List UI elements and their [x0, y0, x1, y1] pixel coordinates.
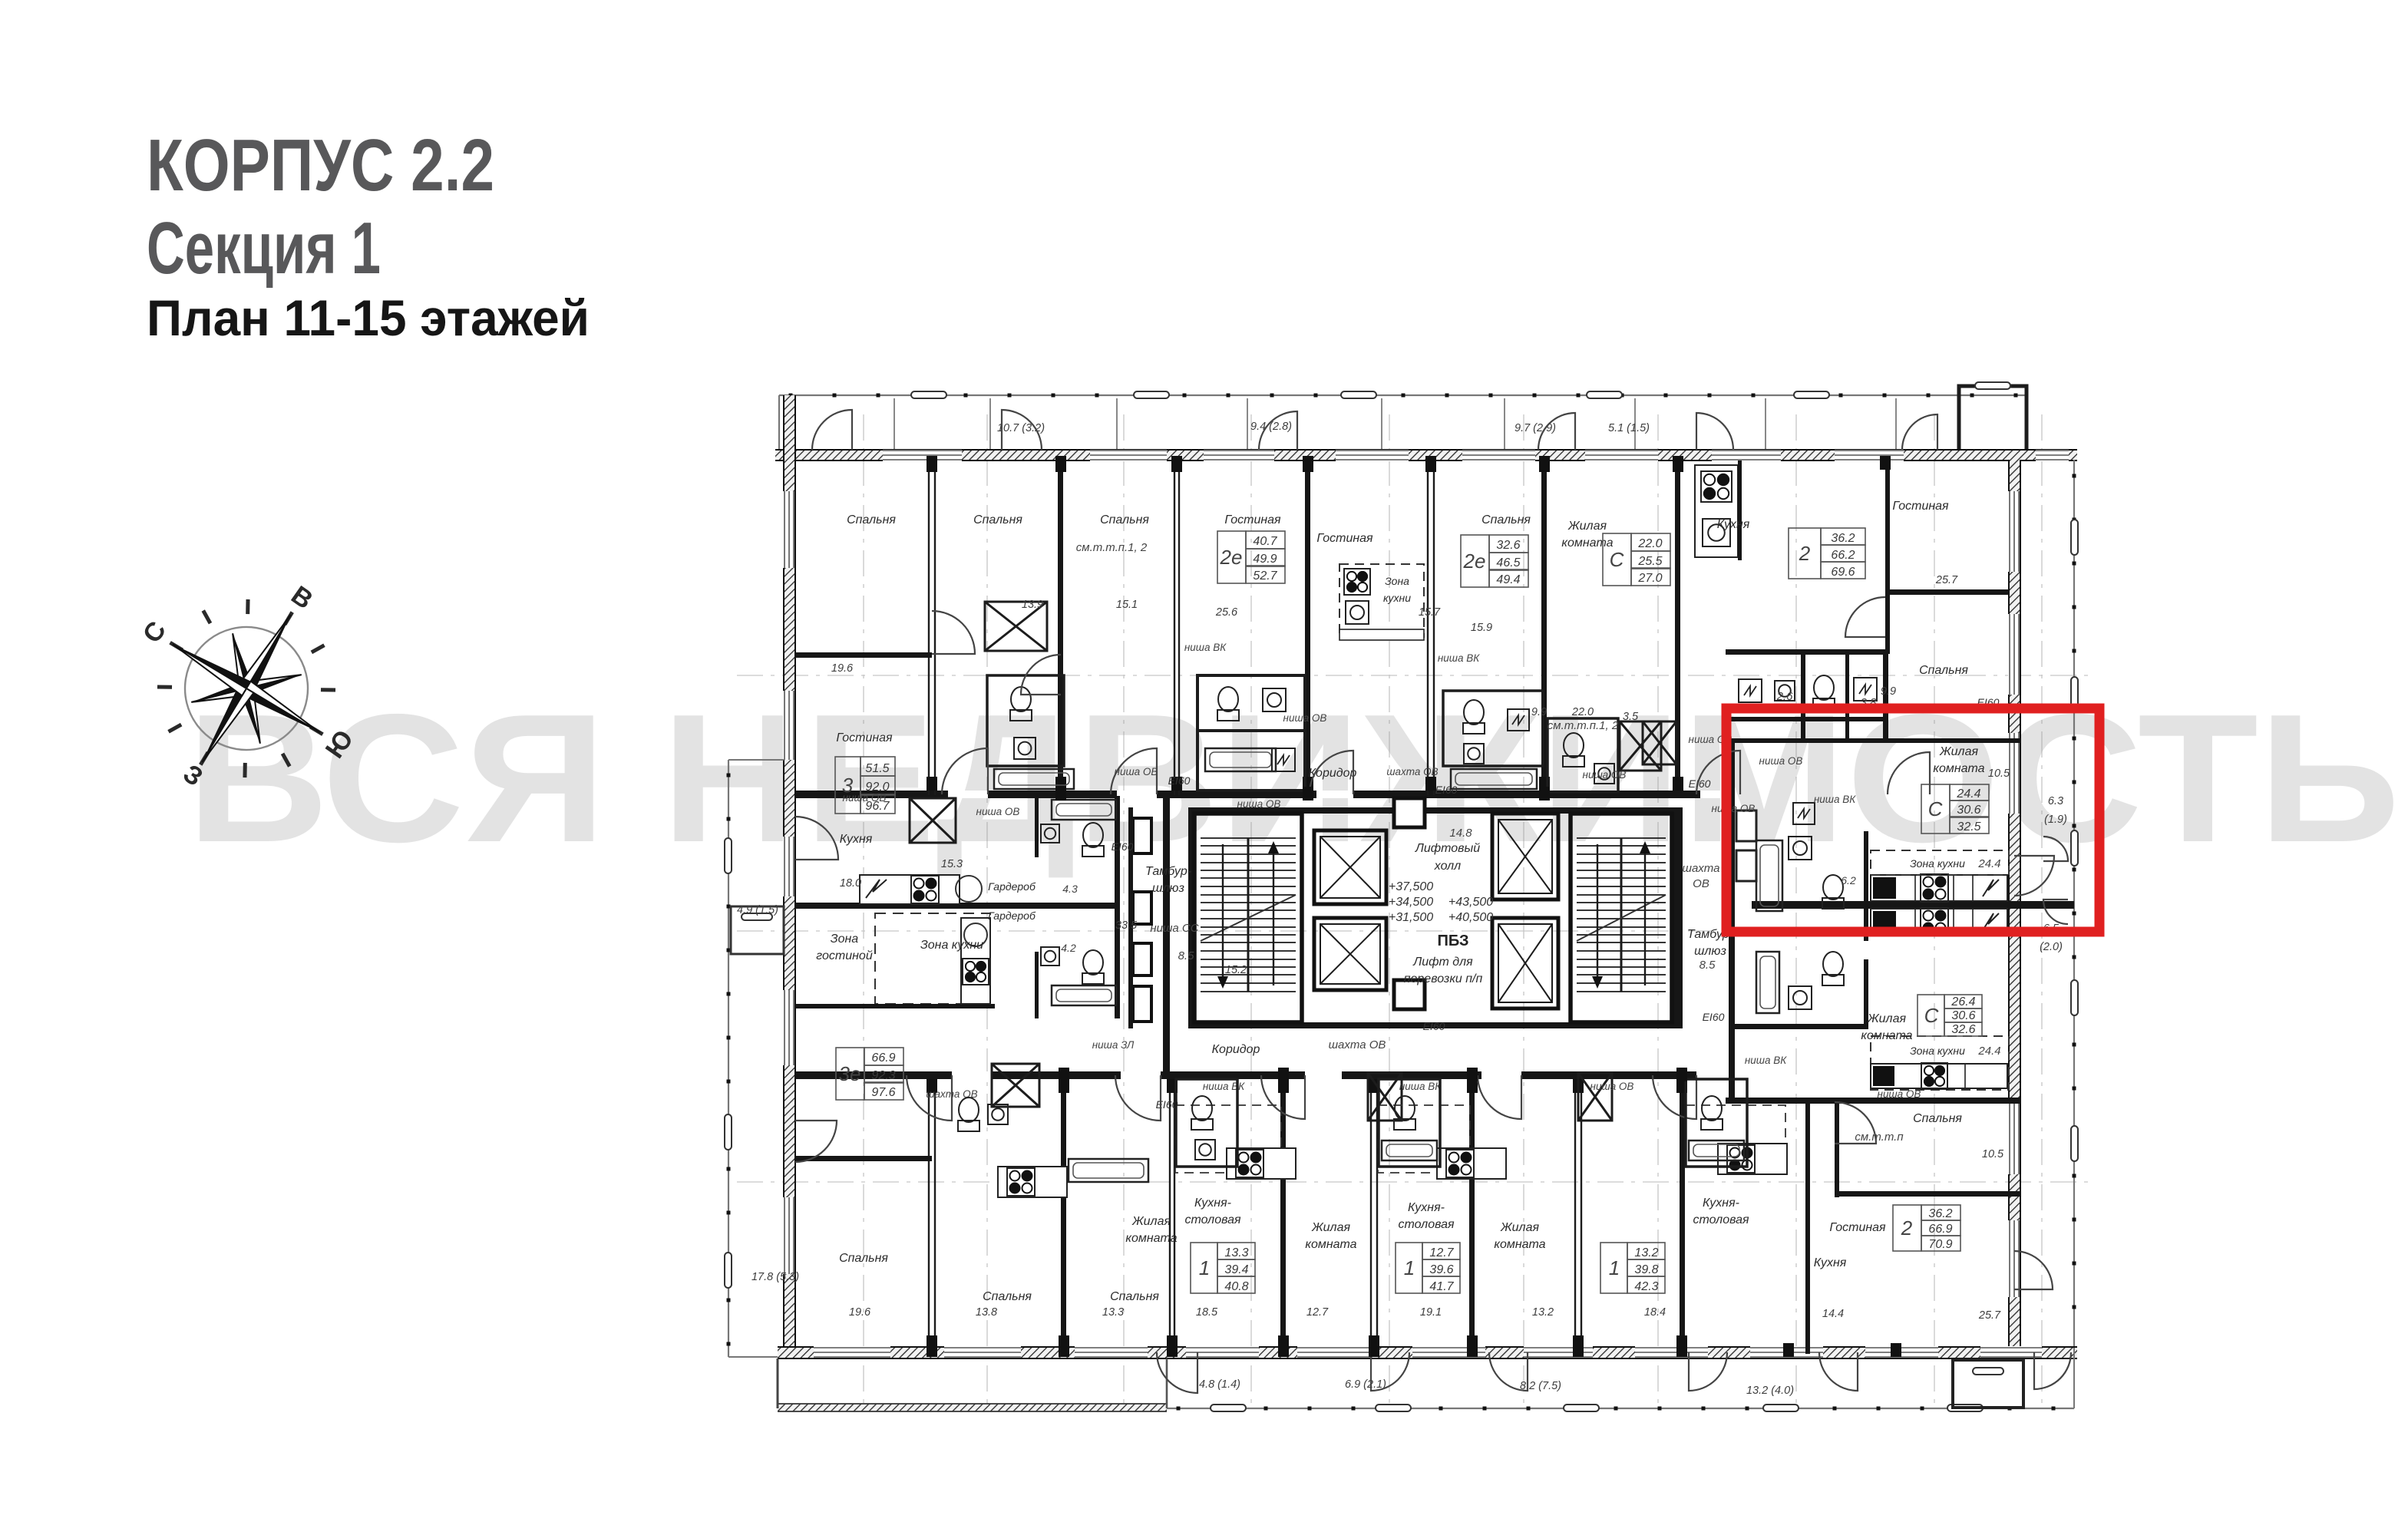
svg-text:холл: холл	[1434, 860, 1461, 873]
svg-text:Спальня: Спальня	[1110, 1290, 1159, 1303]
svg-text:10.5: 10.5	[1982, 1148, 2004, 1160]
svg-text:Спальня: Спальня	[1481, 513, 1531, 527]
svg-text:шлюз: шлюз	[1152, 882, 1184, 895]
svg-text:Кухня: Кухня	[840, 833, 873, 846]
svg-text:ниша ОВ: ниша ОВ	[1590, 1081, 1634, 1092]
svg-text:ниша ОВ: ниша ОВ	[1759, 755, 1803, 767]
svg-text:52.7: 52.7	[1253, 569, 1277, 583]
svg-text:4.3: 4.3	[1062, 883, 1078, 895]
svg-text:24.4: 24.4	[1977, 857, 2000, 870]
svg-text:ниша ОВ: ниша ОВ	[1712, 803, 1756, 814]
svg-text:+34,500: +34,500	[1389, 896, 1433, 909]
svg-text:22.0: 22.0	[1637, 537, 1662, 550]
svg-text:32.5: 32.5	[1957, 820, 1980, 834]
svg-text:ЕІ60: ЕІ60	[1435, 784, 1458, 796]
svg-text:19.6: 19.6	[849, 1306, 871, 1319]
svg-text:ЕІ60: ЕІ60	[1703, 1011, 1725, 1023]
svg-text:Гостиная: Гостиная	[1316, 532, 1373, 545]
svg-text:15.2: 15.2	[1225, 964, 1247, 976]
svg-text:14.8: 14.8	[1449, 827, 1472, 840]
svg-text:66.2: 66.2	[1831, 549, 1855, 562]
svg-text:Гардероб: Гардероб	[988, 909, 1036, 922]
svg-text:ОВ: ОВ	[1693, 877, 1709, 890]
svg-text:42.3: 42.3	[1634, 1280, 1658, 1293]
svg-text:ниша ВК: ниша ВК	[1184, 642, 1227, 653]
svg-text:столовая: столовая	[1693, 1213, 1749, 1226]
svg-text:2: 2	[1799, 542, 1811, 565]
svg-text:15.7: 15.7	[1419, 606, 1441, 619]
svg-text:Кухня: Кухня	[1814, 1256, 1847, 1269]
svg-text:План 11-15 этажей: План 11-15 этажей	[147, 289, 590, 346]
svg-text:ниша ОВ: ниша ОВ	[1878, 1088, 1921, 1100]
svg-text:Гостиная: Гостиная	[1892, 500, 1949, 513]
svg-text:Гостиная: Гостиная	[1224, 513, 1281, 527]
svg-text:ниша ОВ: ниша ОВ	[843, 792, 887, 804]
svg-text:ниша ВК: ниша ВК	[1399, 1081, 1442, 1092]
svg-text:Спальня: Спальня	[847, 513, 896, 527]
svg-text:ниша ОВ: ниша ОВ	[1283, 712, 1327, 724]
svg-text:С: С	[1610, 548, 1624, 571]
svg-text:19.1: 19.1	[1420, 1306, 1442, 1319]
svg-text:4.2: 4.2	[1061, 942, 1076, 954]
svg-text:столовая: столовая	[1184, 1213, 1241, 1226]
svg-text:24.4: 24.4	[1977, 1045, 2000, 1058]
svg-text:8.5: 8.5	[1178, 949, 1195, 962]
svg-text:Кухня-: Кухня-	[1703, 1197, 1739, 1210]
svg-text:40.7: 40.7	[1253, 535, 1277, 548]
svg-text:см.т.т.п.1, 2: см.т.т.п.1, 2	[1076, 541, 1148, 554]
svg-text:70.9: 70.9	[1928, 1238, 1952, 1251]
svg-text:гостиной: гостиной	[816, 949, 873, 962]
svg-text:15.9: 15.9	[1471, 622, 1492, 634]
svg-text:(2.0): (2.0)	[2040, 941, 2063, 953]
svg-text:Зона кухни: Зона кухни	[920, 939, 983, 952]
svg-text:92.3: 92.3	[871, 1069, 895, 1082]
svg-text:ниша ВК: ниша ВК	[1814, 794, 1856, 805]
svg-text:2.6: 2.6	[1776, 690, 1794, 703]
svg-text:18.4: 18.4	[1644, 1306, 1666, 1319]
svg-text:ниша ОВ: ниша ОВ	[1237, 798, 1281, 810]
svg-text:49.4: 49.4	[1496, 573, 1520, 586]
svg-text:18.5: 18.5	[1196, 1306, 1218, 1319]
svg-text:ниша ВК: ниша ВК	[1745, 1055, 1787, 1066]
svg-text:6.2: 6.2	[1841, 874, 1856, 886]
svg-text:комната: комната	[1933, 762, 1984, 775]
svg-text:32.6: 32.6	[1951, 1023, 1975, 1036]
svg-text:С: С	[1924, 1004, 1939, 1027]
svg-text:Коридор: Коридор	[1212, 1043, 1260, 1056]
svg-text:Зона: Зона	[1385, 575, 1409, 587]
svg-text:Жилая: Жилая	[1131, 1215, 1171, 1228]
svg-text:ниша ОВ: ниша ОВ	[1115, 766, 1158, 777]
svg-text:30.6: 30.6	[1951, 1009, 1975, 1022]
svg-text:перевозки п/п: перевозки п/п	[1404, 972, 1483, 985]
svg-text:ниша СС: ниша СС	[1150, 922, 1198, 935]
svg-text:18.0: 18.0	[840, 877, 861, 890]
svg-text:Кухня-: Кухня-	[1408, 1201, 1445, 1214]
svg-text:2е: 2е	[1220, 546, 1243, 569]
svg-text:ЕІ60: ЕІ60	[1168, 774, 1191, 787]
svg-text:2е: 2е	[1463, 550, 1486, 573]
svg-text:25.5: 25.5	[1637, 555, 1662, 568]
svg-text:32.6: 32.6	[1496, 539, 1520, 552]
svg-text:ниша ВК: ниша ВК	[1438, 652, 1480, 664]
svg-text:25.7: 25.7	[1935, 574, 1958, 586]
svg-text:Жилая: Жилая	[1867, 1012, 1906, 1025]
svg-text:13.2: 13.2	[1532, 1306, 1554, 1319]
svg-text:Зона кухни: Зона кухни	[1910, 1045, 1965, 1057]
svg-text:Зона кухни: Зона кухни	[1910, 857, 1965, 870]
svg-text:3е: 3е	[839, 1062, 861, 1085]
svg-text:ниша ОВ: ниша ОВ	[976, 806, 1020, 817]
svg-text:Гостиная: Гостиная	[836, 731, 893, 744]
svg-text:Спальня: Спальня	[1919, 664, 1968, 677]
svg-text:Кухня: Кухня	[1717, 518, 1750, 531]
svg-text:22.0: 22.0	[1571, 706, 1594, 718]
svg-text:Лифтовый: Лифтовый	[1415, 842, 1480, 855]
svg-text:13.9: 13.9	[1022, 599, 1043, 611]
svg-text:Спальня: Спальня	[973, 513, 1022, 527]
svg-text:46.5: 46.5	[1496, 556, 1520, 569]
svg-text:14.4: 14.4	[1822, 1308, 1844, 1320]
svg-text:66.9: 66.9	[1928, 1223, 1952, 1236]
svg-text:13.2 (4.0): 13.2 (4.0)	[1746, 1385, 1794, 1397]
svg-text:2: 2	[1901, 1216, 1913, 1240]
svg-text:ниша ЗЛ: ниша ЗЛ	[1092, 1039, 1135, 1051]
svg-text:26.4: 26.4	[1951, 995, 1975, 1008]
svg-text:С: С	[1928, 797, 1943, 820]
svg-text:комната: комната	[1305, 1238, 1356, 1251]
svg-text:шлюз: шлюз	[1694, 945, 1726, 958]
svg-text:39.6: 39.6	[1429, 1263, 1453, 1276]
svg-text:Гостиная: Гостиная	[1829, 1221, 1886, 1234]
svg-text:97.6: 97.6	[871, 1086, 895, 1099]
svg-text:36.2: 36.2	[1928, 1207, 1952, 1220]
svg-text:49.9: 49.9	[1253, 553, 1277, 566]
svg-text:шахта ОВ: шахта ОВ	[1386, 766, 1438, 777]
svg-text:Спальня: Спальня	[1913, 1112, 1962, 1125]
svg-text:8.5: 8.5	[1699, 959, 1716, 972]
svg-text:(1.9): (1.9)	[2044, 814, 2067, 826]
svg-text:51.5: 51.5	[865, 762, 889, 775]
svg-text:17.8 (5.3): 17.8 (5.3)	[751, 1271, 799, 1283]
svg-text:комната: комната	[1561, 536, 1613, 550]
svg-text:9.9: 9.9	[1881, 685, 1896, 698]
svg-text:Зона: Зона	[831, 933, 859, 946]
svg-text:13.3: 13.3	[1102, 1306, 1124, 1319]
svg-text:4.8 (1.4): 4.8 (1.4)	[1199, 1378, 1240, 1391]
svg-text:КОРПУС 2.2: КОРПУС 2.2	[147, 124, 494, 206]
svg-text:столовая: столовая	[1398, 1218, 1455, 1231]
svg-text:комната: комната	[1125, 1232, 1177, 1245]
svg-text:+43,500: +43,500	[1448, 896, 1493, 909]
svg-text:Жилая: Жилая	[1567, 520, 1607, 533]
svg-text:+40,500: +40,500	[1448, 911, 1493, 924]
svg-text:Спальня: Спальня	[839, 1252, 888, 1265]
svg-text:12.7: 12.7	[1429, 1246, 1454, 1259]
svg-text:41.7: 41.7	[1429, 1280, 1454, 1293]
svg-text:39.4: 39.4	[1224, 1263, 1248, 1276]
svg-text:40.8: 40.8	[1224, 1280, 1248, 1293]
svg-text:27.0: 27.0	[1637, 572, 1662, 585]
svg-text:Жилая: Жилая	[1500, 1221, 1539, 1234]
svg-text:13.8: 13.8	[976, 1306, 997, 1319]
svg-text:1: 1	[1404, 1256, 1415, 1279]
svg-text:Спальня: Спальня	[983, 1290, 1032, 1303]
svg-text:кухни: кухни	[1383, 592, 1411, 604]
svg-text:12.7: 12.7	[1306, 1306, 1329, 1319]
svg-text:Гардероб: Гардероб	[988, 880, 1036, 893]
svg-text:Жилая: Жилая	[1311, 1221, 1350, 1234]
svg-text:69.6: 69.6	[1831, 566, 1855, 579]
svg-text:Тамбур-: Тамбур-	[1145, 865, 1191, 878]
svg-text:+31,500: +31,500	[1389, 911, 1433, 924]
svg-text:13.2: 13.2	[1634, 1246, 1658, 1259]
svg-text:66.9: 66.9	[871, 1051, 895, 1065]
svg-text:39.8: 39.8	[1634, 1263, 1658, 1276]
svg-text:+37,500: +37,500	[1389, 880, 1433, 893]
svg-text:1: 1	[1609, 1256, 1620, 1279]
svg-text:6.3: 6.3	[2048, 795, 2063, 807]
svg-text:19.6: 19.6	[831, 662, 854, 675]
svg-text:30.6: 30.6	[1957, 804, 1980, 817]
svg-text:Кухня-: Кухня-	[1194, 1197, 1231, 1210]
svg-text:15.3: 15.3	[941, 858, 963, 870]
svg-text:25.6: 25.6	[1215, 606, 1238, 619]
svg-text:33.5: 33.5	[1115, 919, 1138, 932]
svg-text:ЕІ60: ЕІ60	[1423, 1020, 1445, 1032]
svg-text:см.т.т.п.1, 2: см.т.т.п.1, 2	[1548, 719, 1619, 732]
svg-text:25.7: 25.7	[1978, 1309, 2001, 1322]
svg-text:ниша ОВ: ниша ОВ	[1583, 769, 1627, 781]
svg-text:24.4: 24.4	[1956, 787, 1980, 801]
svg-text:шахта ОВ: шахта ОВ	[1329, 1038, 1386, 1051]
svg-text:см.т.т.п: см.т.т.п	[1855, 1131, 1903, 1144]
svg-text:15.1: 15.1	[1116, 599, 1138, 611]
svg-text:ЕІ60: ЕІ60	[1112, 840, 1134, 853]
svg-text:10.5: 10.5	[1988, 767, 2010, 780]
svg-text:Жилая: Жилая	[1939, 745, 1978, 758]
svg-text:Лифт для: Лифт для	[1412, 956, 1473, 969]
svg-text:ниша ВК: ниша ВК	[1203, 1081, 1245, 1092]
svg-text:36.2: 36.2	[1831, 532, 1855, 545]
svg-text:ПБЗ: ПБЗ	[1437, 933, 1468, 949]
svg-text:4.9 (1.5): 4.9 (1.5)	[737, 904, 778, 916]
svg-text:Спальня: Спальня	[1100, 513, 1149, 527]
svg-text:шахта: шахта	[1683, 862, 1720, 875]
svg-text:1: 1	[1199, 1256, 1210, 1279]
svg-text:комната: комната	[1861, 1029, 1912, 1042]
svg-text:9.9: 9.9	[1531, 706, 1547, 718]
svg-text:Секция 1: Секция 1	[147, 207, 381, 289]
svg-text:13.3: 13.3	[1224, 1246, 1248, 1259]
svg-text:3.5: 3.5	[1623, 711, 1639, 723]
svg-text:5.1 (1.5): 5.1 (1.5)	[1608, 422, 1650, 434]
svg-text:комната: комната	[1494, 1238, 1545, 1251]
